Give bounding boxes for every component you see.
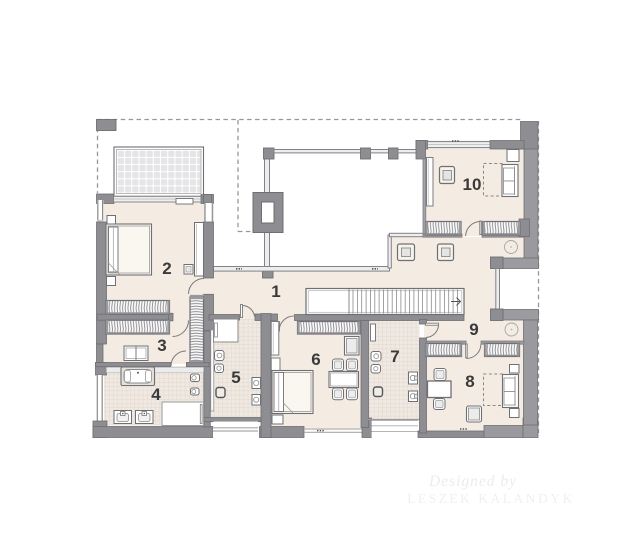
svg-text:6: 6	[311, 350, 320, 369]
svg-text:Designed by: Designed by	[428, 473, 517, 490]
svg-text:1: 1	[271, 282, 280, 301]
svg-text:LESZEK KALANDYK: LESZEK KALANDYK	[407, 491, 575, 506]
svg-text:4: 4	[151, 385, 161, 404]
svg-text:7: 7	[390, 347, 399, 366]
svg-text:9: 9	[469, 320, 478, 339]
svg-text:5: 5	[231, 368, 240, 387]
svg-text:8: 8	[465, 372, 474, 391]
svg-text:3: 3	[157, 336, 166, 355]
svg-text:2: 2	[162, 259, 171, 278]
svg-text:10: 10	[463, 175, 482, 194]
